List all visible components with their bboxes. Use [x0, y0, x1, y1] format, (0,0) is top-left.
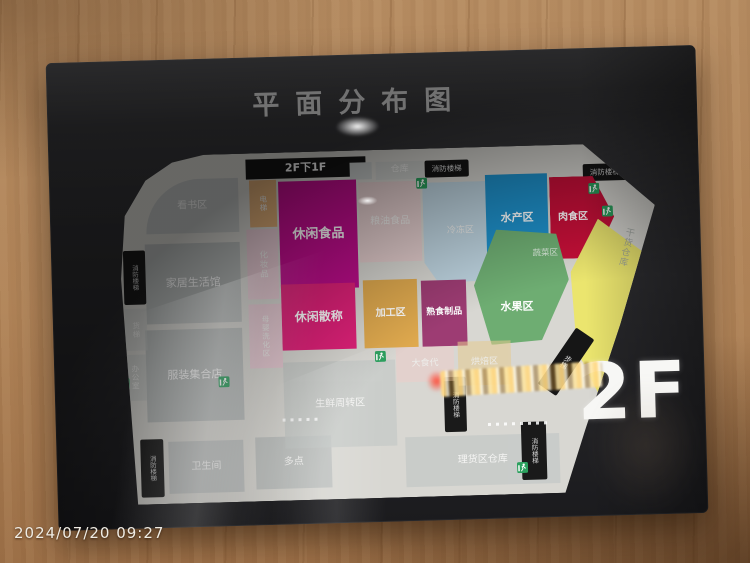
zone-mother-baby-strip: 母婴洗化区 [248, 304, 283, 369]
exit-icon [517, 462, 528, 473]
fruit-zone-label: 水果区 [500, 300, 533, 315]
zone-cooked-food: 熟食制品 [421, 280, 468, 347]
exit-icon [416, 178, 427, 189]
zone-fire-stairs-left: 消防楼梯 [123, 250, 146, 305]
zone-home-living: 家居生活馆 [145, 242, 242, 325]
zone-office: 办公室 [124, 354, 147, 401]
vegetable-zone-label: 蔬菜区 [532, 248, 558, 259]
exit-icon [218, 376, 229, 387]
sign-background: 平面分布图 2F下1F 仓库 消防楼梯 消防楼梯 电梯 休闲食品 粮油食品 冷冻… [46, 45, 709, 531]
zone-cosmetics-strip: 化妆品 [246, 229, 279, 300]
exit-icon [602, 205, 613, 216]
zone-fresh-turnover: 生鲜周转区 [283, 360, 397, 449]
camera-timestamp: 2024/07/20 09:27 [14, 524, 164, 542]
zone-reading-area: 看书区 [145, 178, 239, 235]
light-reflection-spot [335, 116, 380, 137]
photographer-reflection [560, 343, 705, 517]
zone-leisure-bulk: 休闲散称 [281, 283, 357, 351]
zone-toilet: 卫生间 [168, 440, 244, 494]
zone-elevator-strip: 电梯 [249, 180, 277, 228]
zone-processing: 加工区 [363, 279, 419, 348]
zone-freight-elevator: 货梯 [124, 308, 147, 351]
zone-clothing-store: 服装集合店 [145, 328, 245, 423]
zone-blank-tab [349, 162, 371, 180]
floorplan-sign-board: 平面分布图 2F下1F 仓库 消防楼梯 消防楼梯 电梯 休闲食品 粮油食品 冷冻… [46, 45, 709, 531]
exit-icon [588, 183, 599, 194]
zone-grain-oil-food: 粮油食品 [358, 181, 422, 263]
exit-icon [118, 378, 129, 389]
zone-fire-stairs-top: 消防楼梯 [424, 159, 468, 177]
exit-icon [375, 351, 386, 362]
zone-leisure-food: 休闲食品 [278, 180, 359, 290]
zone-fire-stairs-bottom-left: 消防楼梯 [140, 439, 165, 498]
zone-escalator-2f-to-1f: 2F下1F [245, 156, 366, 179]
